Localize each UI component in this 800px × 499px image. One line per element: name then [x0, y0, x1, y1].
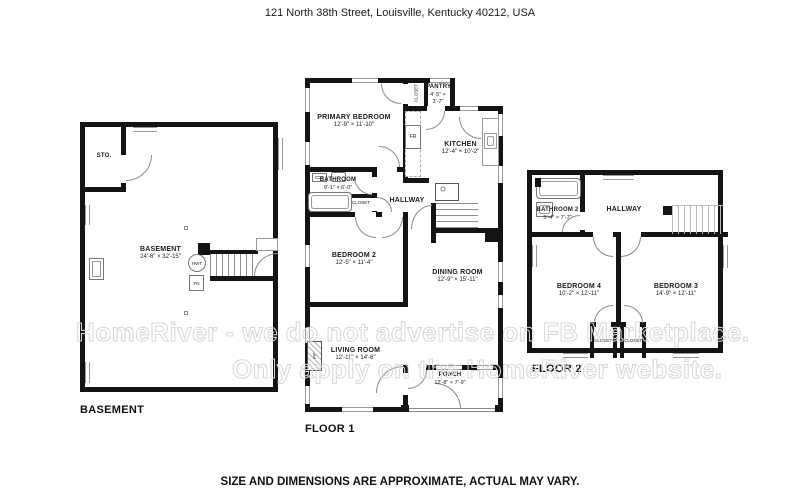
- stove: [435, 183, 459, 201]
- room-dims: 4'-5" × 3'-7": [426, 92, 450, 106]
- room-label-storage: STO.: [87, 153, 121, 161]
- bathtub: [308, 192, 352, 212]
- room-label-dining: DINING ROOM 12'-9" × 15'-11": [415, 268, 500, 285]
- staircase: [672, 205, 723, 234]
- window: [498, 166, 503, 183]
- bathtub: [536, 178, 581, 199]
- room-name: LIVING ROOM: [313, 346, 398, 355]
- room-label-pantry: PANTRY 4'-5" × 3'-7": [426, 84, 450, 106]
- window: [305, 142, 310, 165]
- window: [498, 295, 503, 308]
- door-opening: [403, 84, 408, 104]
- floor1-plan: FR FP PRIMARY BEDROOM 12'-9" × 11'-10" C…: [305, 78, 503, 412]
- staircase: [436, 203, 478, 228]
- floor1-floor-label: FLOOR 1: [305, 423, 355, 435]
- room-name: KITCHEN: [418, 140, 503, 149]
- wall: [485, 230, 498, 242]
- room-name: BEDROOM 2: [310, 251, 398, 260]
- door-arc: [624, 305, 643, 323]
- room-label-closet-right: CLOSET: [622, 338, 644, 344]
- wall: [403, 212, 408, 307]
- support-post: [184, 226, 188, 230]
- floor2-floor-label: FLOOR 2: [532, 363, 582, 375]
- room-label-closet-top: CLOSET: [409, 81, 423, 105]
- room-name: BEDROOM 3: [632, 282, 720, 291]
- room-name: BEDROOM 4: [540, 282, 618, 291]
- door-arc: [254, 253, 278, 276]
- door-arc: [379, 146, 400, 167]
- wall: [535, 178, 541, 187]
- door-arc: [382, 217, 403, 238]
- room-name: BATHROOM: [308, 177, 368, 185]
- room-name: BASEMENT: [113, 245, 208, 254]
- address-title: 121 North 38th Street, Louisville, Kentu…: [0, 7, 800, 19]
- room-label-basement: BASEMENT 24'-6" × 32'-15": [113, 245, 208, 262]
- stair-landing: [256, 238, 278, 251]
- room-dims: 9'-1" × 6'-0": [308, 185, 368, 192]
- room-name: PRIMARY BEDROOM: [308, 113, 400, 122]
- utility-sink: [89, 258, 104, 280]
- porch-post: [495, 405, 503, 412]
- room-name: HALLWAY: [377, 196, 437, 205]
- door-arc: [459, 117, 481, 139]
- window: [723, 245, 728, 268]
- door-arc: [621, 237, 641, 257]
- window: [603, 175, 634, 180]
- window: [430, 78, 450, 83]
- window: [673, 353, 699, 358]
- basement-plan: STO. BASEMENT 24'-6" × 32'-15" HWT FN: [80, 122, 278, 392]
- door-arc: [593, 237, 613, 257]
- window: [563, 353, 588, 358]
- window: [498, 378, 503, 398]
- room-name: PORCH: [410, 372, 490, 380]
- room-label-bathroom2: BATHROOM 2 5'-4" × 7'-7": [534, 207, 581, 222]
- window: [305, 386, 310, 404]
- door-arc: [411, 205, 432, 229]
- door-opening: [372, 177, 377, 193]
- staircase: [210, 254, 256, 276]
- window: [352, 78, 378, 83]
- stair-newel-block: [663, 206, 672, 215]
- room-dims: 5'-4" × 7'-7": [534, 215, 581, 222]
- door-arc: [426, 111, 445, 130]
- room-dims: 12'-9" × 15'-11": [415, 277, 500, 285]
- floorplan-page: 121 North 38th Street, Louisville, Kentu…: [0, 0, 800, 499]
- disclaimer-text: SIZE AND DIMENSIONS ARE APPROXIMATE, ACT…: [0, 476, 800, 488]
- room-name: BATHROOM 2: [534, 207, 581, 215]
- window: [460, 106, 478, 111]
- support-post: [184, 311, 188, 315]
- floor2-plan: CLOSET CLOSET BATHROOM 2 5'-4" × 7'-7" H…: [527, 170, 723, 353]
- door-opening: [377, 167, 397, 172]
- room-dims: 12'-9" × 11'-10": [308, 122, 400, 130]
- room-name: STO.: [87, 153, 121, 161]
- room-name: PANTRY: [426, 84, 450, 92]
- window: [305, 88, 310, 112]
- door-arc: [594, 305, 613, 323]
- room-label-primary-bedroom: PRIMARY BEDROOM 12'-9" × 11'-10": [308, 113, 400, 130]
- room-dims: 14'-9" × 12'-11": [632, 291, 720, 299]
- room-label-bedroom3: BEDROOM 3 14'-9" × 12'-11": [632, 282, 720, 299]
- wall: [305, 302, 408, 307]
- room-label-hallway: HALLWAY: [377, 196, 437, 205]
- room-dims: 12'-8" × 7'-9": [410, 380, 490, 387]
- room-label-porch: PORCH 12'-8" × 7'-9": [410, 372, 490, 387]
- wall: [210, 276, 278, 281]
- window: [278, 138, 283, 170]
- room-dims: 24'-6" × 32'-15": [113, 254, 208, 262]
- door-arc: [355, 217, 376, 238]
- room-label-bedroom4: BEDROOM 4 10'-2" × 12'-11": [540, 282, 618, 299]
- room-label-hallway2: HALLWAY: [595, 205, 653, 214]
- door-arc: [376, 366, 403, 393]
- window: [477, 365, 493, 370]
- window: [342, 407, 373, 412]
- room-dims: 12'-4" × 10'-2": [418, 149, 503, 157]
- window: [532, 245, 537, 267]
- room-name: DINING ROOM: [415, 268, 500, 277]
- window: [133, 127, 157, 132]
- room-label-bathroom: BATHROOM 9'-1" × 6'-0": [308, 177, 368, 192]
- room-dims: 10'-2" × 12'-11": [540, 291, 618, 299]
- door-arc: [126, 155, 152, 181]
- door-arc: [381, 84, 401, 104]
- room-name: HALLWAY: [595, 205, 653, 214]
- window: [85, 362, 90, 383]
- room-label-closet-left: CLOSET: [592, 338, 614, 344]
- room-label-kitchen: KITCHEN 12'-4" × 10'-2": [418, 140, 503, 157]
- room-label-living: LIVING ROOM 12'-11" × 14'-6": [313, 346, 398, 363]
- window: [436, 365, 462, 370]
- room-dims: 12'-11" × 14'-6": [313, 355, 398, 363]
- wall: [85, 187, 126, 192]
- room-label-bedroom2: BEDROOM 2 12'-5" × 11'-4": [310, 251, 398, 268]
- room-label-closet-hall: CLOSET: [349, 200, 373, 206]
- room-dims: 12'-5" × 11'-4": [310, 260, 398, 268]
- furnace: FN: [189, 275, 204, 291]
- basement-floor-label: BASEMENT: [80, 404, 144, 416]
- window: [85, 205, 90, 225]
- wall: [403, 178, 429, 183]
